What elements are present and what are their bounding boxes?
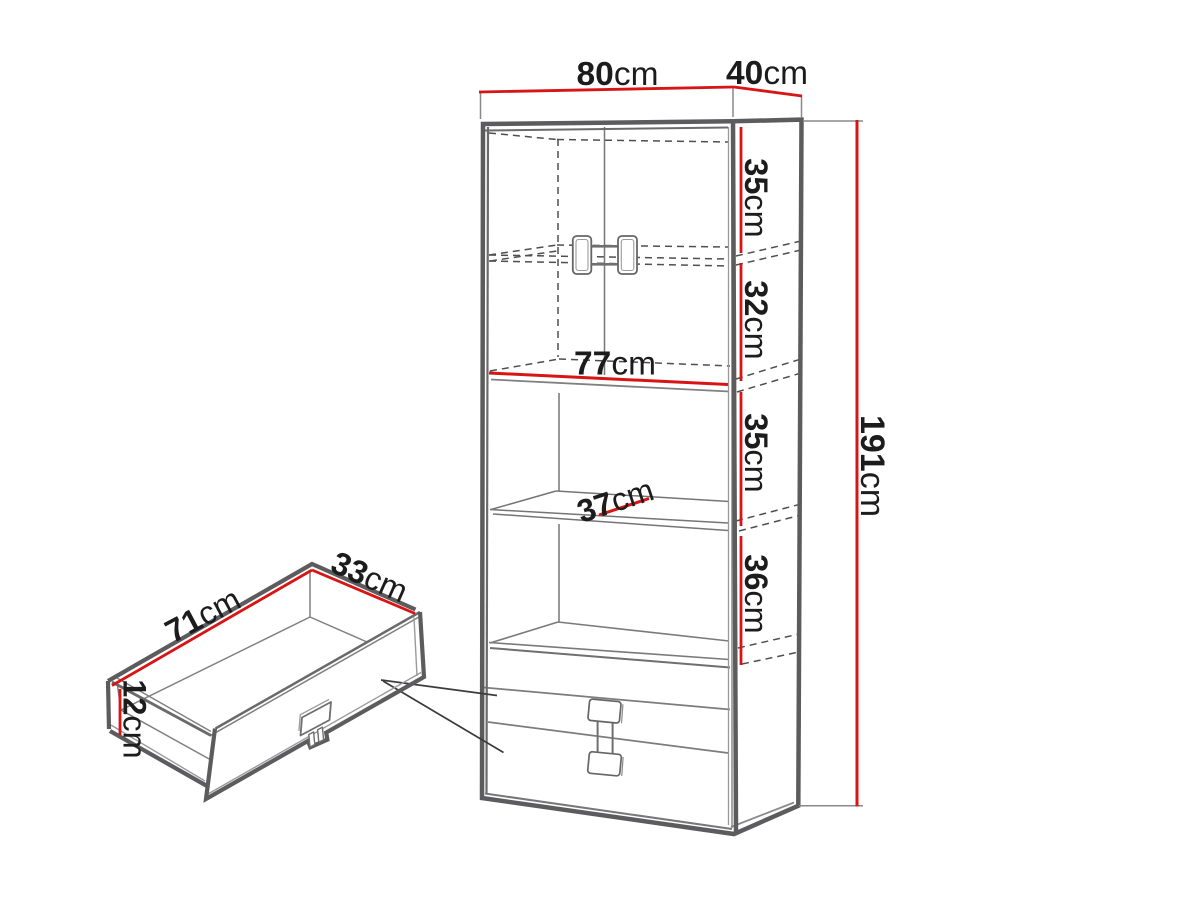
svg-text:12cm: 12cm	[117, 679, 153, 758]
svg-text:35cm: 35cm	[738, 413, 774, 492]
svg-text:32cm: 32cm	[738, 280, 774, 359]
svg-text:35cm: 35cm	[738, 158, 774, 237]
svg-text:191cm: 191cm	[853, 415, 891, 517]
svg-text:40cm: 40cm	[726, 55, 808, 92]
svg-text:36cm: 36cm	[738, 554, 774, 633]
svg-text:77cm: 77cm	[574, 346, 656, 383]
svg-text:80cm: 80cm	[577, 56, 659, 93]
